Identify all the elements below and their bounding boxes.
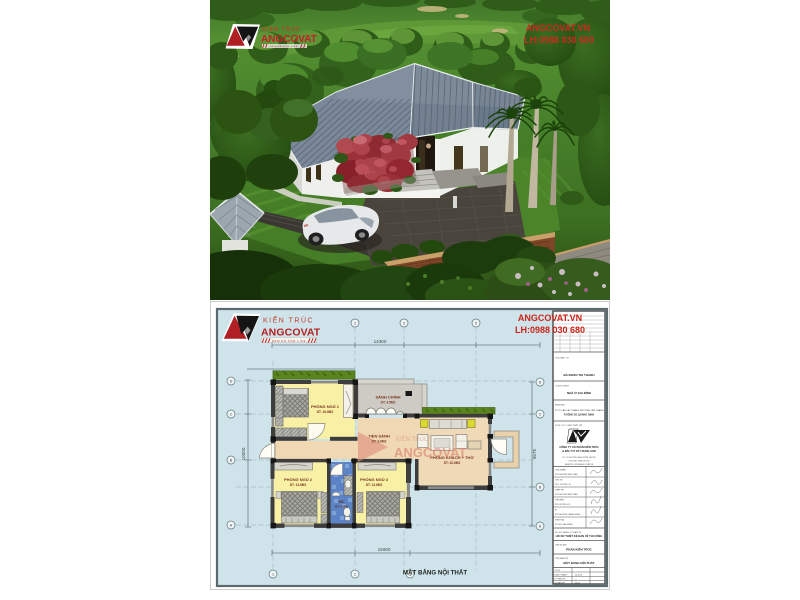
svg-text:KTS.NGUYỄN VĂN TUẤN: KTS.NGUYỄN VĂN TUẤN xyxy=(555,493,578,496)
svg-text:DT: 4.0M2: DT: 4.0M2 xyxy=(335,505,348,509)
svg-text:CHỦ TRÌ: CHỦ TRÌ xyxy=(555,479,563,482)
svg-text:C: C xyxy=(539,412,542,416)
svg-text:THỂ HIỆN: THỂ HIỆN xyxy=(555,499,564,502)
svg-text:DT: 13.6M2: DT: 13.6M2 xyxy=(366,483,383,487)
svg-text:ANGCOVAT.VN: ANGCOVAT.VN xyxy=(518,313,582,323)
svg-text:MẶT BẰNG NỘI THẤT: MẶT BẰNG NỘI THẤT xyxy=(563,560,594,565)
svg-text:KTS.ĐỖ VĂN HOÀN: KTS.ĐỖ VĂN HOÀN xyxy=(555,523,573,526)
svg-text:TỶ LỆ: TỶ LỆ xyxy=(555,569,561,572)
svg-text:5: 5 xyxy=(475,321,477,325)
svg-text:KIẾN TRÚC: KIẾN TRÚC xyxy=(396,436,429,443)
svg-text:KIẾN TRÚC: KIẾN TRÚC xyxy=(262,26,301,33)
svg-text:KTS. VƯƠNG LỢI: KTS. VƯƠNG LỢI xyxy=(555,484,571,486)
svg-text:VP: 12 NGUYỄN VĂN HUYÊN, HÀ NỘ: VP: 12 NGUYỄN VĂN HUYÊN, HÀ NỘI xyxy=(562,456,596,459)
svg-text:TÊN BẢN VẼ: TÊN BẢN VẼ xyxy=(555,557,569,560)
svg-text:ĐƠN VỊ TƯ VẤN THIẾT KẾ: ĐƠN VỊ TƯ VẤN THIẾT KẾ xyxy=(555,424,583,427)
svg-text:15060: 15060 xyxy=(378,547,391,552)
svg-text:2: 2 xyxy=(354,321,356,325)
svg-text:MẶT BẰNG NỘI THẤT: MẶT BẰNG NỘI THẤT xyxy=(403,569,467,577)
svg-text:BÀ ĐOÀN THỊ THANH: BÀ ĐOÀN THỊ THANH xyxy=(564,372,595,377)
svg-text:GIAI ĐOẠN: GIAI ĐOẠN xyxy=(555,544,567,547)
svg-text:CHỦ ĐẦU TƯ: CHỦ ĐẦU TƯ xyxy=(555,357,569,360)
svg-text:DT: 13.6M2: DT: 13.6M2 xyxy=(290,483,307,487)
svg-text:NHÀ Ở GIA ĐÌNH: NHÀ Ở GIA ĐÌNH xyxy=(567,390,591,395)
svg-text:WC: WC xyxy=(339,500,345,504)
svg-text:HOTLINE: 0988 030 680: HOTLINE: 0988 030 680 xyxy=(569,461,590,463)
svg-text:DT: 4.5M2: DT: 4.5M2 xyxy=(381,401,396,405)
svg-text:KIỂM TRA: KIỂM TRA xyxy=(555,519,565,522)
svg-text:DESIGN FOR LIFE: DESIGN FOR LIFE xyxy=(270,46,298,48)
svg-text:ANGCOVAT: ANGCOVAT xyxy=(261,34,317,45)
svg-text:WEBSITE: WWW.ANGCOVAT.VN: WEBSITE: WWW.ANGCOVAT.VN xyxy=(565,463,594,466)
svg-text:9575: 9575 xyxy=(532,448,537,459)
svg-text:ĐỊA ĐIỂM: ĐỊA ĐIỂM xyxy=(555,404,565,407)
svg-text:TIỀN SẢNH: TIỀN SẢNH xyxy=(368,434,390,439)
svg-text:LH:0988 030 680: LH:0988 030 680 xyxy=(524,35,594,45)
svg-text:PHÒNG NGỦ 3: PHÒNG NGỦ 3 xyxy=(360,477,389,482)
svg-text:D: D xyxy=(230,379,233,383)
svg-text:TỔ 11 CÂU LẠC THANH, PHƯỜNG YÊ: TỔ 11 CÂU LẠC THANH, PHƯỜNG YÊN THANH xyxy=(555,409,604,412)
svg-text:14300: 14300 xyxy=(374,339,387,344)
svg-text:PHÒNG NGỦ 2: PHÒNG NGỦ 2 xyxy=(284,477,313,482)
svg-text:KTS.NGUYỄN THANH HÙNG: KTS.NGUYỄN THANH HÙNG xyxy=(555,513,581,516)
svg-text:DT: 9.6M2: DT: 9.6M2 xyxy=(372,440,387,444)
svg-text:1: 1 xyxy=(272,572,274,576)
svg-text:SỐ BẢN VẼ: SỐ BẢN VẼ xyxy=(555,582,566,585)
svg-text:10000: 10000 xyxy=(241,447,246,460)
svg-text:DESIGN FOR LIFE: DESIGN FOR LIFE xyxy=(272,339,306,343)
svg-text:ANGCOVAT.VN: ANGCOVAT.VN xyxy=(526,23,590,33)
svg-text:PHÒNG KHÁCH + THỜ: PHÒNG KHÁCH + THỜ xyxy=(430,455,474,460)
svg-text:KTS.NGUYỄN VĂN TUẤN: KTS.NGUYỄN VĂN TUẤN xyxy=(555,473,578,476)
svg-text:SẢNH CHÍNH: SẢNH CHÍNH xyxy=(375,395,400,400)
svg-text:04-03: 04-03 xyxy=(575,583,580,585)
svg-text:THIẾT KẾ: THIẾT KẾ xyxy=(555,489,564,492)
svg-text:CÔNG TRÌNH: CÔNG TRÌNH xyxy=(555,385,569,388)
svg-text:C: C xyxy=(230,412,233,416)
svg-text:CHỦ NHIỆM: CHỦ NHIỆM xyxy=(555,469,566,472)
svg-text:PHẦN KIẾN TRÚC: PHẦN KIẾN TRÚC xyxy=(566,547,593,552)
svg-text:LH:0988 030 680: LH:0988 030 680 xyxy=(515,325,585,335)
svg-text:04-2016: 04-2016 xyxy=(575,575,582,577)
svg-text:ANGCOVAT: ANGCOVAT xyxy=(261,327,321,339)
svg-text:DT: 16.8M2: DT: 16.8M2 xyxy=(317,410,334,414)
svg-text:2: 2 xyxy=(354,572,356,576)
svg-text:KÝ HIỆU HS: KÝ HIỆU HS xyxy=(555,578,566,581)
svg-text:P.UÔNG BÍ, QUẢNG NINH: P.UÔNG BÍ, QUẢNG NINH xyxy=(564,414,594,417)
svg-text:HỒ SƠ ĐĂNG KÝ BẢN VẼ: HỒ SƠ ĐĂNG KÝ BẢN VẼ xyxy=(555,531,582,534)
svg-text:DT: 32.6M2: DT: 32.6M2 xyxy=(444,461,461,465)
svg-text:PHÒNG NGỦ 1: PHÒNG NGỦ 1 xyxy=(311,404,340,409)
svg-text:KTS.VƯƠNG LỢI: KTS.VƯƠNG LỢI xyxy=(555,504,571,506)
svg-text:NGÀY THÁNG: NGÀY THÁNG xyxy=(555,574,568,577)
svg-text:3: 3 xyxy=(403,321,405,325)
svg-text:D: D xyxy=(539,380,542,384)
